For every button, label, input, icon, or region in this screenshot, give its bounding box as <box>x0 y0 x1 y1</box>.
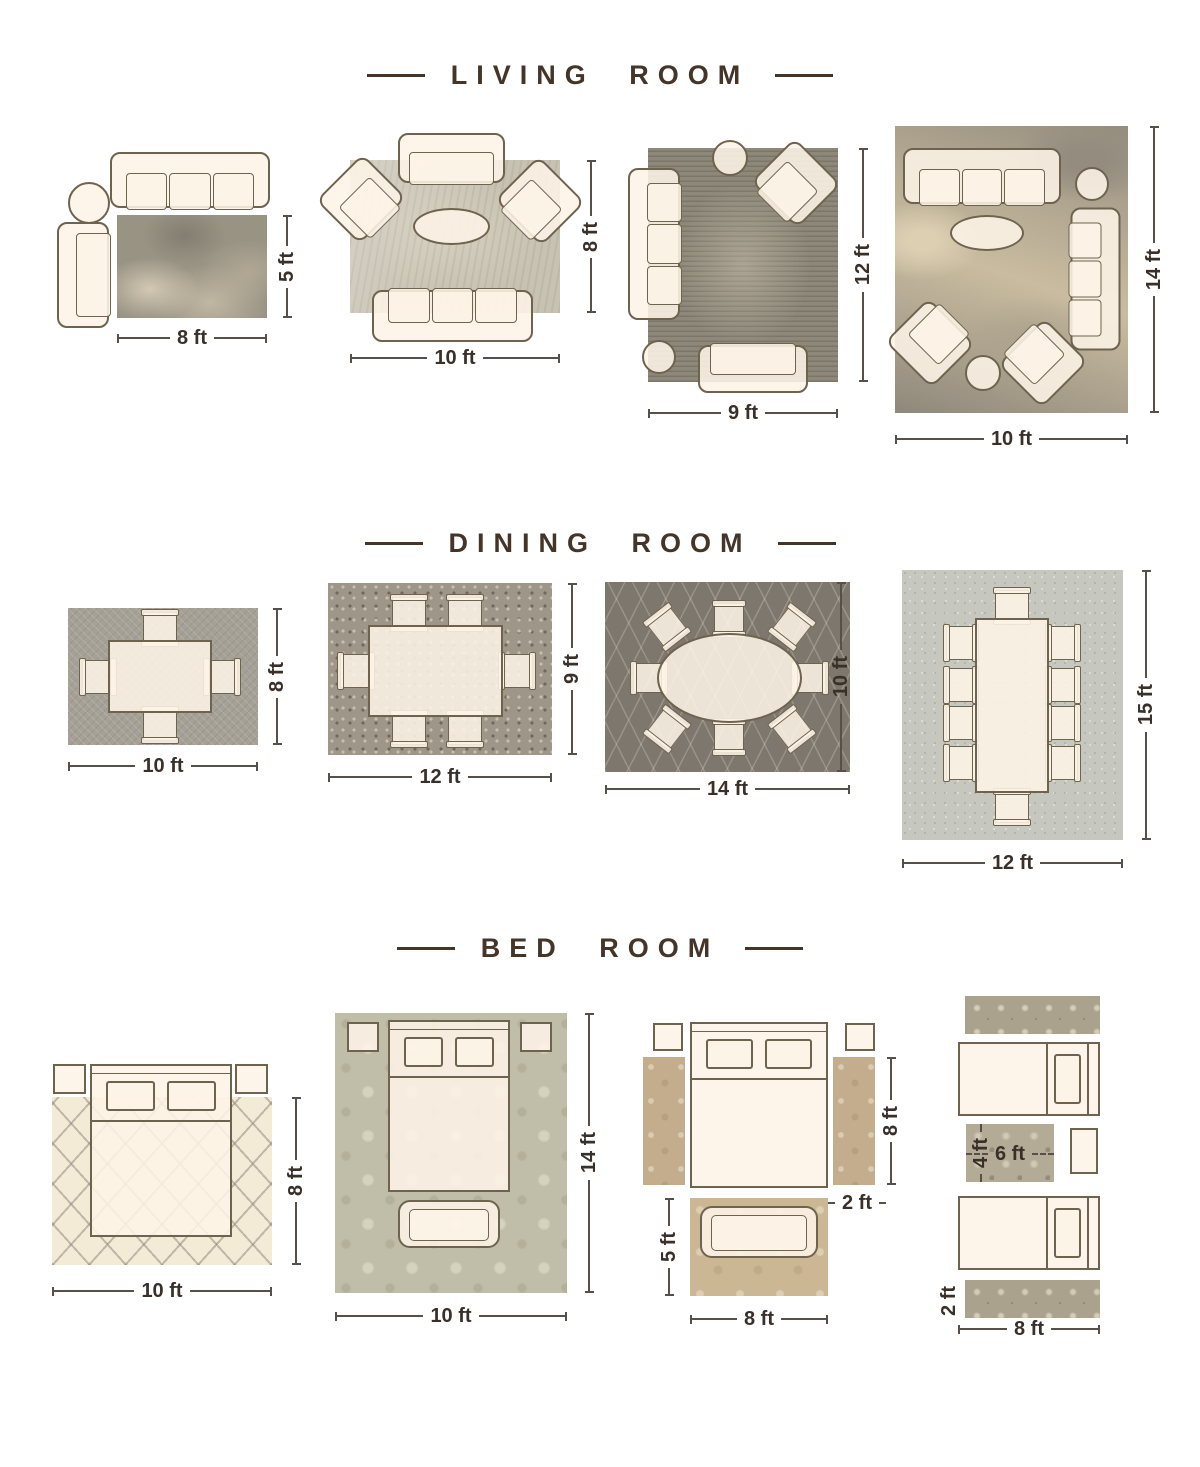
dining-chair <box>143 709 177 741</box>
dining-table <box>368 625 503 717</box>
nightstand <box>235 1064 268 1094</box>
headboard <box>1089 1044 1098 1114</box>
layout-bed-room-runners: 8 ft 2 ft 5 ft 8 ft <box>630 1000 910 1330</box>
duvet <box>92 1122 230 1235</box>
sofa <box>372 290 533 342</box>
bed-width-dimension: 8 ft <box>958 1318 1100 1340</box>
nightstand <box>53 1064 86 1094</box>
round-side-table <box>965 355 1001 391</box>
title-dash-right <box>775 74 833 77</box>
headboard <box>692 1024 826 1032</box>
runner-rug <box>833 1057 875 1185</box>
rug-width-dimension: 8 ft <box>117 327 267 349</box>
layout-living-room-10x8: 8 ft 10 ft <box>330 120 610 380</box>
pillow <box>1054 1208 1081 1258</box>
layout-dining-room-14x10: 10 ft 14 ft <box>595 570 895 810</box>
round-side-table <box>1075 167 1109 201</box>
dining-chair <box>1048 668 1078 702</box>
bench <box>700 1206 818 1258</box>
rug-width-dimension: 9 ft <box>648 402 838 424</box>
dining-chair <box>714 721 744 753</box>
title-dash-right <box>745 947 803 950</box>
dimension-label: 5 ft <box>277 246 297 288</box>
runner-rug <box>965 1280 1100 1318</box>
dining-chair <box>448 713 482 745</box>
dimension-label: 15 ft <box>1136 678 1156 731</box>
bed <box>690 1022 828 1188</box>
dining-chair <box>714 603 744 635</box>
dimension-label: 2 ft <box>939 1280 959 1322</box>
dimension-label: 8 ft <box>170 328 214 348</box>
pillow <box>404 1037 443 1067</box>
nightstand <box>347 1022 379 1052</box>
duvet <box>692 1080 826 1186</box>
sofa <box>903 148 1061 204</box>
rug-height-dimension: 14 ft <box>578 1013 600 1293</box>
dining-chair <box>995 791 1029 823</box>
rug-8x5 <box>117 215 267 318</box>
twin-bed <box>958 1042 1100 1116</box>
dining-chair <box>501 654 533 688</box>
rug-width-dimension: 10 ft <box>335 1305 567 1327</box>
nightstand <box>1070 1128 1098 1174</box>
bed <box>90 1064 232 1237</box>
center-rug-width-dimension: 6 ft <box>966 1143 1054 1165</box>
title-dash-left <box>397 947 455 950</box>
dining-chair <box>946 668 976 702</box>
dimension-label: 8 ft <box>267 656 287 698</box>
title-dash-left <box>365 542 423 545</box>
headboard <box>390 1022 508 1030</box>
duvet <box>960 1044 1048 1114</box>
duvet <box>960 1198 1048 1268</box>
rug-width-dimension: 12 ft <box>902 852 1123 874</box>
foot-rug-width-dimension: 8 ft <box>690 1308 828 1330</box>
dimension-label: 14 ft <box>579 1126 599 1179</box>
dimension-label: 10 ft <box>135 756 190 776</box>
title-dash-right <box>778 542 836 545</box>
pillow <box>1054 1054 1081 1104</box>
round-side-table <box>642 340 676 374</box>
runner-rug <box>965 996 1100 1034</box>
dimension-label: 8 ft <box>881 1100 901 1142</box>
runner-width-dimension: 2 ft <box>828 1192 886 1214</box>
pillow <box>765 1039 812 1069</box>
bed-room-title: BED ROOM <box>481 933 720 964</box>
rug-width-dimension: 10 ft <box>350 347 560 369</box>
dimension-label: 12 ft <box>412 767 467 787</box>
rug-height-dimension: 8 ft <box>580 160 602 313</box>
dining-chair <box>1048 706 1078 740</box>
section-title-dining-room: DINING ROOM <box>0 528 1200 559</box>
layout-bed-room-10x14: 14 ft 10 ft <box>310 990 610 1340</box>
oval-dining-table <box>657 633 802 723</box>
runner-rug <box>643 1057 685 1185</box>
rug-height-dimension: 8 ft <box>285 1097 307 1265</box>
rug-width-dimension: 10 ft <box>52 1280 272 1302</box>
oval-coffee-table <box>413 208 490 245</box>
rug-size-guide: LIVING ROOM 5 ft 8 ft <box>0 0 1200 1467</box>
dining-chair <box>946 626 976 660</box>
nightstand <box>520 1022 552 1052</box>
rug-width-dimension: 12 ft <box>328 766 552 788</box>
sofa <box>1071 208 1121 351</box>
runner-length-dimension: 8 ft <box>880 1057 902 1185</box>
dimension-label: 12 ft <box>985 853 1040 873</box>
layout-living-room-9x12: 12 ft 9 ft <box>610 130 880 430</box>
dining-table <box>975 618 1049 793</box>
dimension-label: 5 ft <box>659 1226 679 1268</box>
dimension-label: 12 ft <box>853 238 873 291</box>
dining-chair <box>946 746 976 780</box>
layout-bed-room-10x8: 8 ft 10 ft <box>30 1040 320 1320</box>
dimension-label: 10 ft <box>984 429 1039 449</box>
pillow <box>706 1039 753 1069</box>
loveseat <box>698 345 808 393</box>
nightstand <box>845 1023 875 1051</box>
runner-width-dimension: 2 ft <box>938 1280 960 1318</box>
title-dash-left <box>367 74 425 77</box>
dimension-label: 9 ft <box>721 403 765 423</box>
rug-height-dimension: 8 ft <box>266 608 288 745</box>
dimension-label: 10 ft <box>427 348 482 368</box>
bed <box>388 1020 510 1192</box>
nightstand <box>653 1023 683 1051</box>
dining-table <box>108 640 212 713</box>
living-room-title: LIVING ROOM <box>451 60 750 91</box>
oval-coffee-table <box>950 215 1024 251</box>
headboard <box>92 1066 230 1074</box>
section-title-bed-room: BED ROOM <box>0 933 1200 964</box>
pillow <box>455 1037 494 1067</box>
headboard <box>1089 1198 1098 1268</box>
layout-living-room-8x5: 5 ft 8 ft <box>50 130 330 360</box>
layout-living-room-10x14: 14 ft 10 ft <box>880 110 1180 450</box>
rug-height-dimension: 14 ft <box>1143 126 1165 413</box>
dimension-label: 9 ft <box>562 648 582 690</box>
layout-dining-room-12x9: 9 ft 12 ft <box>310 570 600 810</box>
dimension-label: 8 ft <box>737 1309 781 1329</box>
rug-height-dimension: 10 ft <box>830 582 852 772</box>
rug-width-dimension: 14 ft <box>605 778 850 800</box>
dimension-label: 6 ft <box>988 1144 1032 1164</box>
rug-height-dimension: 15 ft <box>1135 570 1157 840</box>
dining-chair <box>1048 626 1078 660</box>
round-side-table <box>68 182 110 224</box>
dimension-label: 8 ft <box>581 216 601 258</box>
pillow <box>167 1081 216 1111</box>
duvet <box>390 1078 508 1190</box>
rug-height-dimension: 9 ft <box>561 583 583 755</box>
layout-bed-room-twin-beds: 4 ft 6 ft 2 ft 8 ft <box>930 980 1190 1360</box>
dimension-label: 8 ft <box>1007 1319 1051 1339</box>
sofa <box>110 152 270 208</box>
dimension-label: 10 ft <box>423 1306 478 1326</box>
dimension-label: 2 ft <box>835 1193 879 1213</box>
section-title-living-room: LIVING ROOM <box>0 60 1200 91</box>
dining-chair <box>1048 746 1078 780</box>
dining-chair <box>392 713 426 745</box>
pillow <box>106 1081 155 1111</box>
rug-width-dimension: 10 ft <box>68 755 258 777</box>
dimension-label: 14 ft <box>700 779 755 799</box>
round-side-table <box>712 140 748 176</box>
foot-rug-height-dimension: 5 ft <box>658 1198 680 1296</box>
dimension-label: 10 ft <box>134 1281 189 1301</box>
bench <box>398 1200 500 1248</box>
rug-width-dimension: 10 ft <box>895 428 1128 450</box>
layout-dining-room-12x15: 15 ft 12 ft <box>880 560 1170 890</box>
dimension-label: 8 ft <box>286 1160 306 1202</box>
loveseat <box>398 133 505 183</box>
dimension-label: 14 ft <box>1144 243 1164 296</box>
rug-height-dimension: 5 ft <box>276 215 298 318</box>
dining-room-title: DINING ROOM <box>449 528 752 559</box>
dining-chair <box>946 706 976 740</box>
sofa <box>628 168 680 320</box>
loveseat <box>57 222 109 328</box>
rug-height-dimension: 12 ft <box>852 148 874 382</box>
layout-dining-room-10x8: 8 ft 10 ft <box>40 580 320 800</box>
dimension-label: 10 ft <box>831 650 851 703</box>
twin-bed <box>958 1196 1100 1270</box>
